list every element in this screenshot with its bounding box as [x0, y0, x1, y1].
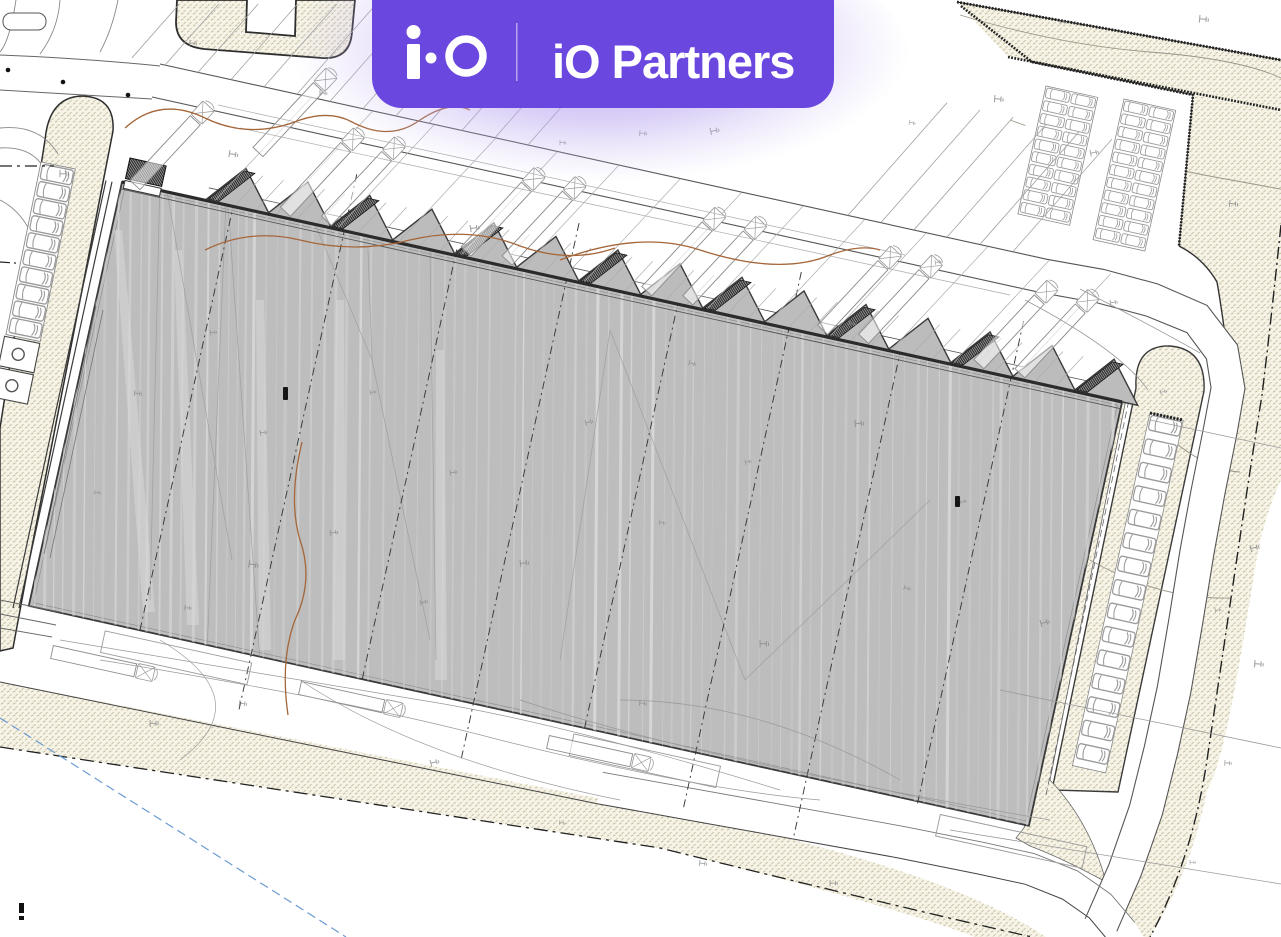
svg-text:iO Partners: iO Partners [552, 35, 794, 88]
